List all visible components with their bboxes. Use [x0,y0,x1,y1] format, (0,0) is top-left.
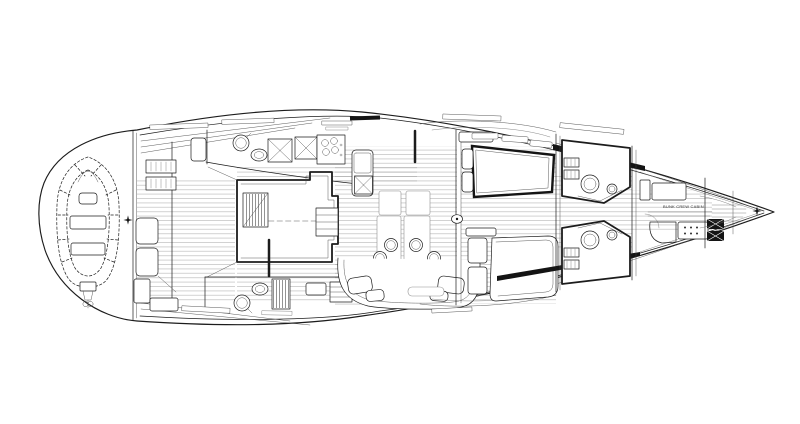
wardrobe [191,138,206,161]
crew-bunk-upper [652,183,686,200]
stove [317,135,345,164]
starboard-forward-head [562,221,630,284]
shower-grating [272,279,290,309]
toilet [233,133,251,151]
toilet [581,175,599,193]
port-forward-cabin [459,132,554,197]
sink [251,149,267,161]
pillow [462,149,473,169]
galley-peninsula [352,150,373,196]
port-forward-head [562,140,630,203]
seat [306,283,326,295]
tender-thwart [70,216,106,229]
toilet [581,231,599,249]
coffee-table [408,287,444,296]
sink [252,283,268,295]
engine-room-steps [316,208,338,236]
sink [607,230,617,240]
double-berth [472,146,554,197]
mast-section [452,215,463,224]
companionway-stairs [243,193,268,227]
galley-counter-sink [268,137,317,162]
tender-thwart [71,243,105,255]
sink [607,184,617,194]
pillow [462,172,473,192]
yacht-plan-canvas: BUNK CREW CABIN [0,0,800,424]
crew-cabin-label: BUNK CREW CABIN [663,204,704,209]
tender-outboard-motor [80,282,96,308]
locker [468,267,487,294]
crew-bunk-lower [678,222,708,239]
yacht-deck-plan: BUNK CREW CABIN [0,0,800,424]
locker [468,238,487,263]
curved-settee [338,258,480,309]
aft-locker [136,218,158,244]
aft-locker [136,248,158,276]
stern-centerline-marker [123,215,132,224]
locker-grill [146,160,176,190]
